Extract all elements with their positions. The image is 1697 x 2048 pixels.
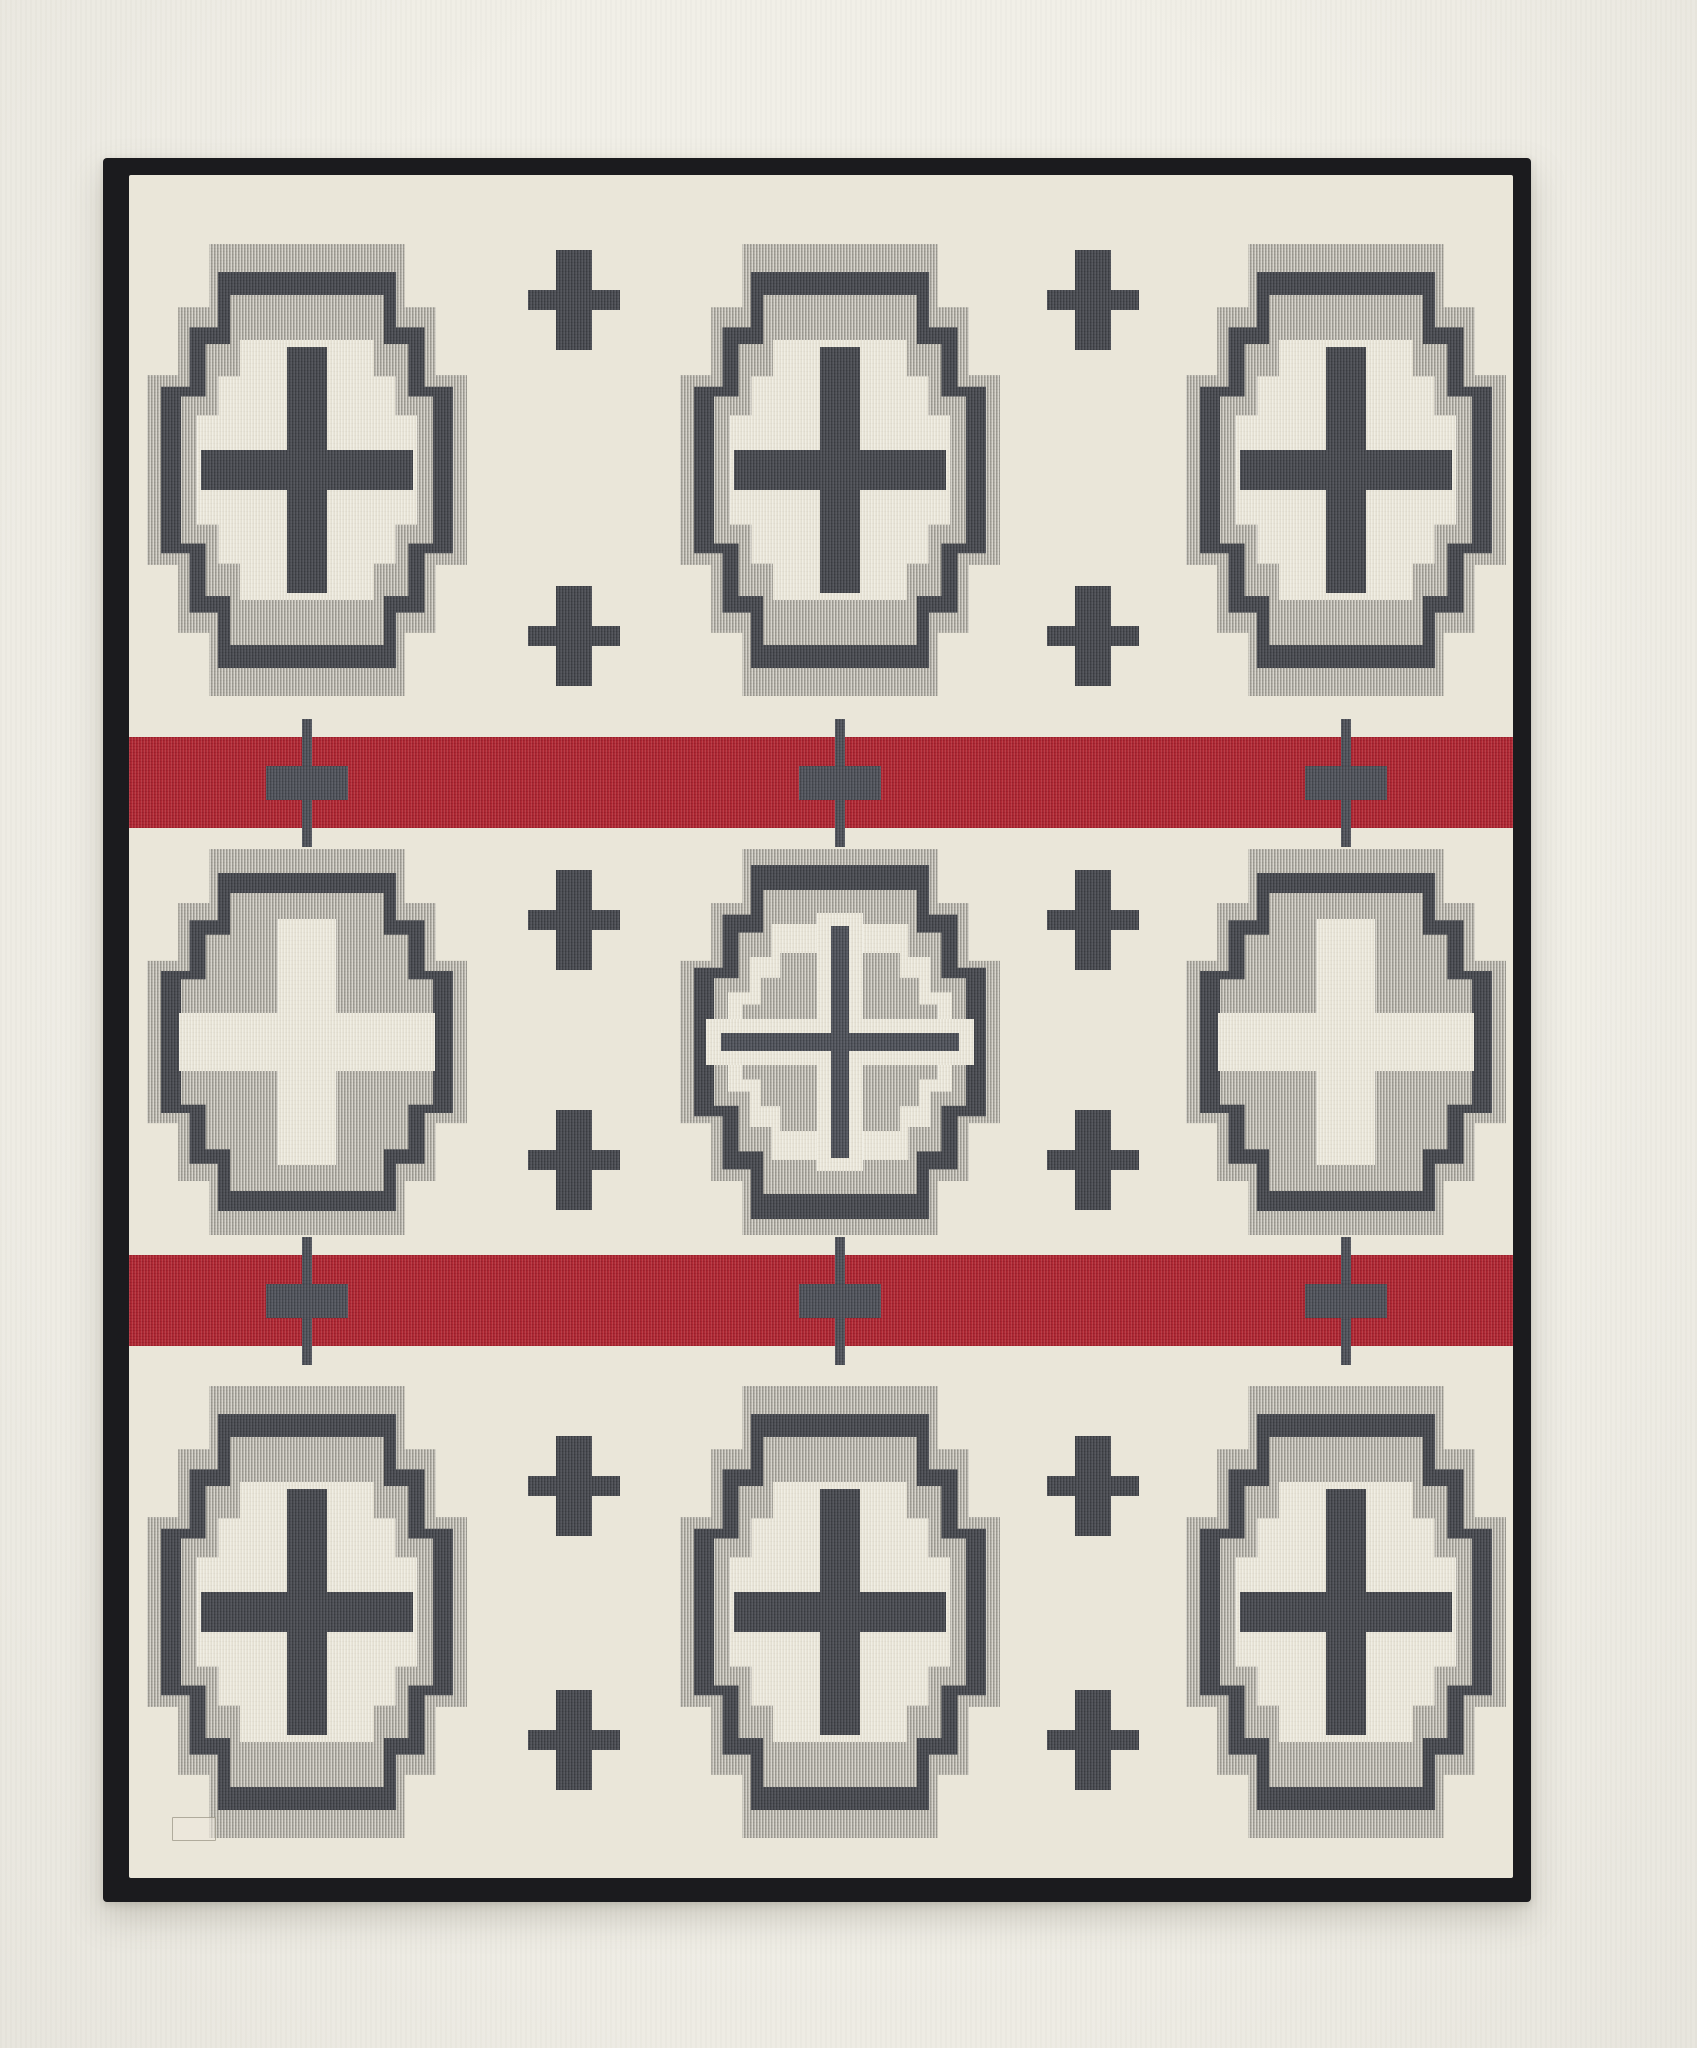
- cross-row3-col1-dark-plus: [147, 1386, 467, 1838]
- cross-row1-col3-dark-plus: [1186, 244, 1506, 696]
- small-plus-2: [1047, 250, 1139, 350]
- cross-row2-col1-cream-plus: [147, 849, 467, 1235]
- small-plus-7: [528, 1110, 620, 1210]
- cross-row3-col3-dark-plus: [1186, 1386, 1506, 1838]
- blanket-field: [129, 175, 1513, 1878]
- small-plus-1: [528, 250, 620, 350]
- cross-row2-col2-nested: [680, 849, 1000, 1235]
- stripe-cross-bar-2-3: [1305, 1284, 1387, 1318]
- small-plus-4: [1047, 586, 1139, 686]
- stripe-cross-bar-1-3: [1305, 766, 1387, 800]
- cross-row1-col2-dark-plus: [680, 244, 1000, 696]
- small-plus-3: [528, 586, 620, 686]
- small-plus-12: [1047, 1690, 1139, 1790]
- cross-row3-col2-dark-plus: [680, 1386, 1000, 1838]
- small-plus-10: [1047, 1436, 1139, 1536]
- small-plus-11: [528, 1690, 620, 1790]
- blanket: [103, 158, 1531, 1902]
- small-plus-8: [1047, 1110, 1139, 1210]
- cross-row2-col3-cream-plus: [1186, 849, 1506, 1235]
- blanket-label-tag: [172, 1817, 216, 1841]
- stripe-cross-bar-2-1: [266, 1284, 348, 1318]
- cross-row1-col1-dark-plus: [147, 244, 467, 696]
- small-plus-5: [528, 870, 620, 970]
- stripe-cross-bar-1-2: [799, 766, 881, 800]
- small-plus-6: [1047, 870, 1139, 970]
- stripe-cross-bar-1-1: [266, 766, 348, 800]
- stripe-cross-bar-2-2: [799, 1284, 881, 1318]
- small-plus-9: [528, 1436, 620, 1536]
- photo-background: [0, 0, 1697, 2048]
